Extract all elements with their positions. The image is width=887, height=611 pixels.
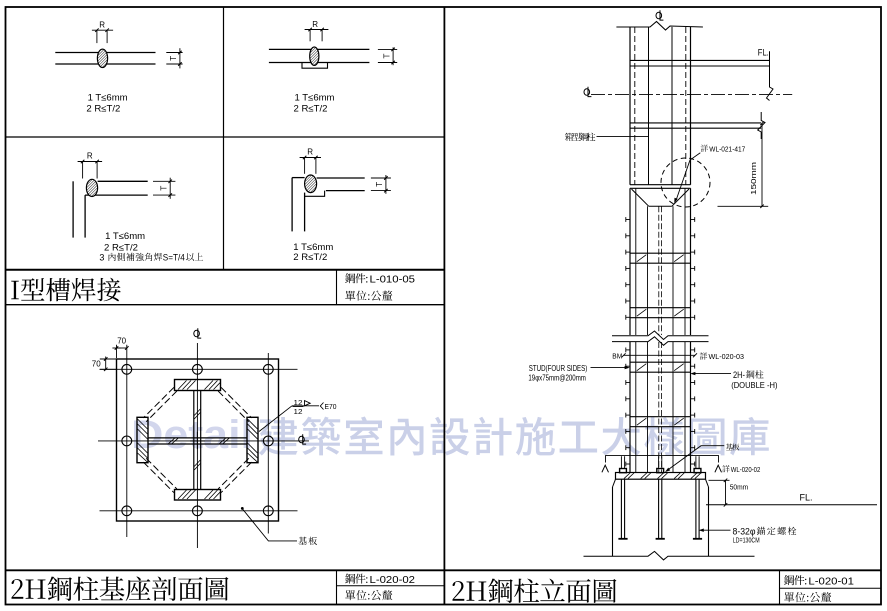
svg-text:T: T — [382, 53, 391, 58]
svg-text:T: T — [375, 182, 384, 187]
svg-text:LD=130CM: LD=130CM — [733, 535, 760, 544]
svg-text:2 R≤T/2: 2 R≤T/2 — [294, 104, 328, 114]
svg-text:STUD(FOUR SIDES): STUD(FOUR SIDES) — [529, 364, 588, 373]
svg-text:1 T≤6mm: 1 T≤6mm — [88, 93, 128, 103]
svg-text:E70: E70 — [325, 402, 337, 411]
svg-text:150mm: 150mm — [749, 162, 758, 195]
svg-text:WL-020-03: WL-020-03 — [709, 352, 745, 361]
svg-text:2 R≤T/2: 2 R≤T/2 — [293, 252, 327, 262]
svg-text:L-020-01: L-020-01 — [808, 575, 854, 587]
svg-text:2 R≤T/2: 2 R≤T/2 — [104, 242, 138, 252]
svg-text:R: R — [312, 20, 318, 29]
svg-text:3: 3 — [99, 252, 104, 262]
svg-text:FL.: FL. — [758, 48, 769, 58]
svg-text:12: 12 — [294, 407, 303, 416]
svg-text:L-010-05: L-010-05 — [370, 273, 416, 285]
svg-text:WL-020-02: WL-020-02 — [731, 465, 761, 474]
svg-text:70: 70 — [117, 336, 126, 345]
svg-text:1 T≤6mm: 1 T≤6mm — [293, 242, 333, 252]
svg-text:R: R — [99, 21, 105, 30]
svg-text:12: 12 — [294, 398, 303, 407]
svg-text:WL-021-417: WL-021-417 — [709, 144, 745, 153]
svg-text:(DOUBLE -H): (DOUBLE -H) — [731, 380, 777, 390]
svg-text:S=T/4: S=T/4 — [163, 252, 185, 262]
svg-text:50mm: 50mm — [730, 483, 749, 492]
svg-text:R: R — [307, 148, 313, 157]
svg-text:Detail: Detail — [131, 413, 253, 457]
svg-text:T: T — [169, 56, 178, 61]
svg-text:19φx75mm@200mm: 19φx75mm@200mm — [528, 373, 586, 382]
svg-text:2 R≤T/2: 2 R≤T/2 — [86, 104, 120, 114]
svg-text:L-020-02: L-020-02 — [370, 574, 416, 586]
svg-text:FL.: FL. — [800, 493, 813, 503]
svg-text:1 T≤6mm: 1 T≤6mm — [105, 231, 145, 241]
svg-text:BM: BM — [612, 352, 622, 361]
svg-text:1 T≤6mm: 1 T≤6mm — [295, 93, 335, 103]
svg-text:R: R — [87, 152, 93, 161]
svg-text:2H-: 2H- — [733, 370, 745, 380]
svg-text:70: 70 — [92, 360, 101, 369]
svg-text:T: T — [160, 186, 169, 191]
